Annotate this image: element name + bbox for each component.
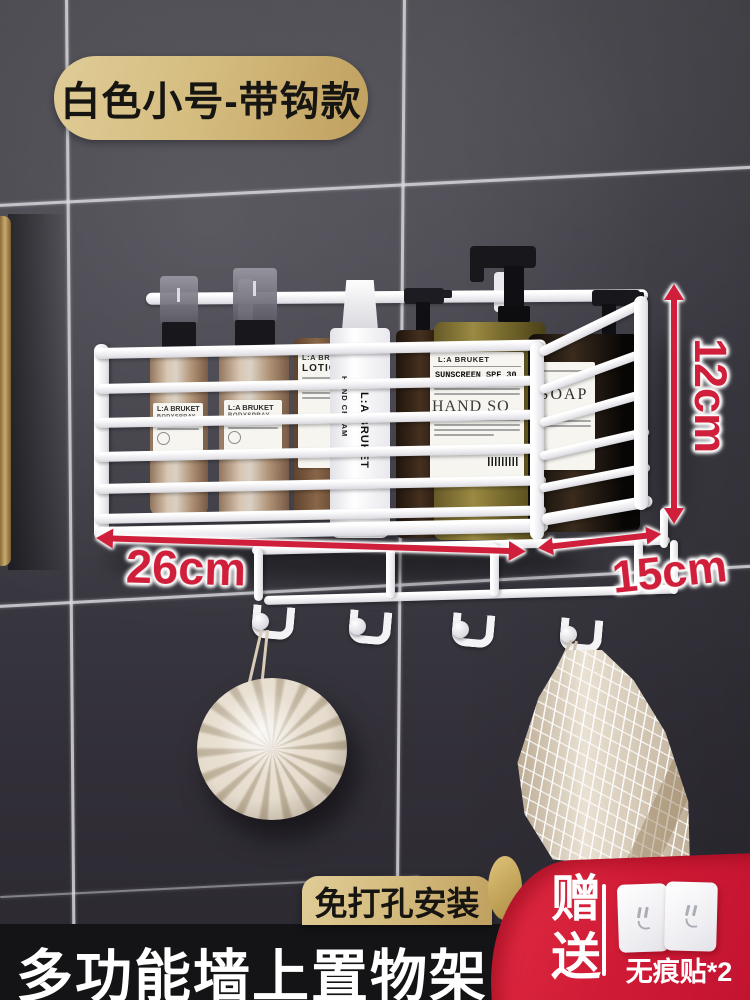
- tube-brand-text: L:A BRUKET: [358, 392, 370, 469]
- adhesive-sticker-icon: [617, 883, 669, 953]
- adhesive-sticker-icon: [664, 881, 718, 951]
- variant-badge: 白色小号-带钩款: [54, 56, 368, 140]
- install-badge: 免打孔安装: [302, 876, 492, 925]
- label-stamp: [157, 432, 170, 445]
- basket-back-right-post: [634, 296, 648, 510]
- sunscreen-brand-text: L:A BRUKET: [433, 352, 521, 367]
- pump-collar: [498, 306, 530, 322]
- hook-ball: [452, 621, 469, 638]
- hook-ball: [349, 618, 366, 635]
- product-listing-image: L:A BRU LOTION L:A BRUKET BODYSPRAY L:A …: [0, 0, 750, 1000]
- width-dimension-label: 26cm: [125, 538, 247, 596]
- cream-tube: HAND CREAM L:A BRUKET: [328, 280, 392, 538]
- hook-rail-post: [254, 549, 263, 601]
- cap-mark: [177, 288, 180, 302]
- height-dimension-label: 12cm: [684, 338, 736, 453]
- variant-badge-label: 白色小号-带钩款: [60, 69, 361, 127]
- spray-brand-text: L:A BRUKET: [153, 403, 203, 413]
- mirror-frame-edge: [0, 216, 11, 566]
- scrub-puff: [197, 678, 347, 820]
- spray-brand-text: L:A BRUKET: [224, 400, 282, 412]
- pump-stem: [504, 266, 524, 308]
- basket-left-post: [94, 344, 109, 540]
- label-stamp: [228, 431, 241, 444]
- install-badge-label: 免打孔安装: [315, 877, 480, 925]
- barcode: [488, 457, 518, 466]
- tile-grout-horizontal-upper: [0, 166, 750, 207]
- pump-spout: [470, 264, 484, 282]
- gift-label: 赠送: [536, 872, 608, 994]
- basket-front-right-post: [530, 342, 544, 540]
- depth-dimension-label: 15cm: [610, 540, 730, 604]
- gift-divider: [602, 884, 606, 976]
- hook-ball: [252, 613, 269, 630]
- height-dimension-arrow: [664, 284, 684, 524]
- mirror-frame-shadow: [8, 214, 66, 570]
- tile-grout-vertical-left: [65, 0, 75, 936]
- footer-title: 多功能墙上置物架: [16, 931, 488, 1000]
- gift-item-label: 无痕贴*2: [608, 950, 750, 989]
- towel: [514, 650, 690, 866]
- cap-mark: [253, 281, 256, 296]
- tube-cap: [342, 280, 378, 330]
